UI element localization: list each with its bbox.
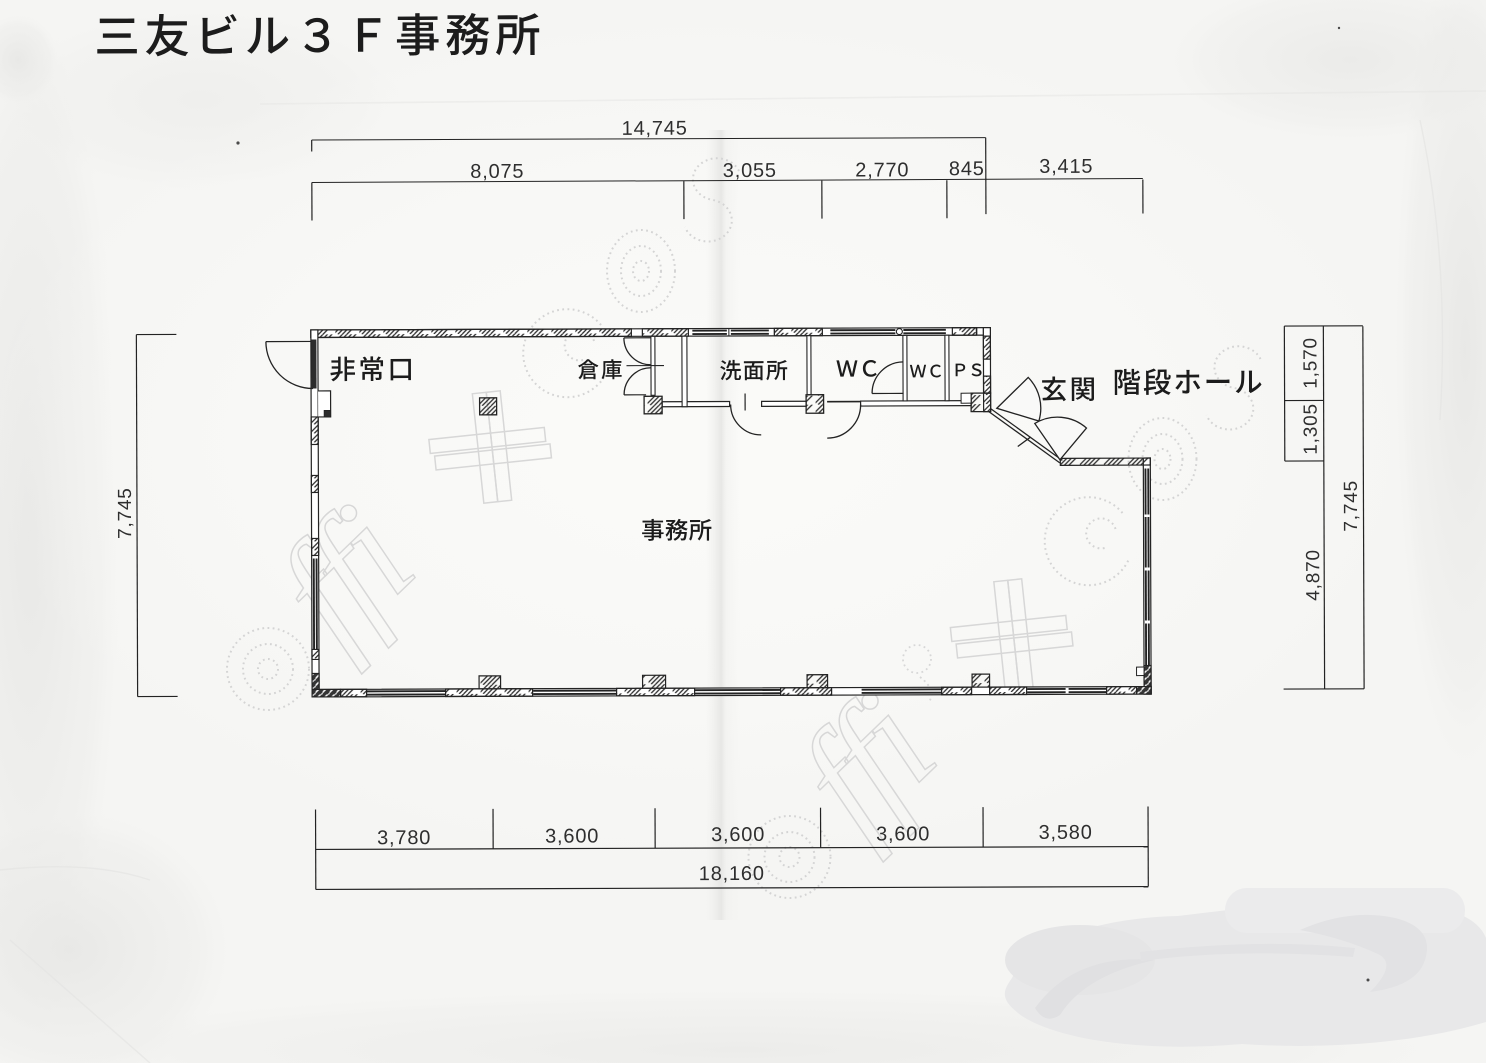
svg-text:8,075: 8,075: [470, 161, 524, 183]
svg-text:3,415: 3,415: [1039, 156, 1093, 178]
svg-text:3,580: 3,580: [1039, 822, 1093, 844]
svg-text:14,745: 14,745: [622, 118, 688, 140]
svg-text:845: 845: [949, 158, 985, 180]
svg-text:3,780: 3,780: [377, 827, 431, 849]
svg-text:7,745: 7,745: [115, 487, 136, 539]
svg-text:4,870: 4,870: [1303, 549, 1324, 601]
svg-text:3,055: 3,055: [723, 160, 777, 182]
svg-text:1,305: 1,305: [1301, 403, 1322, 455]
svg-text:7,745: 7,745: [1341, 480, 1362, 532]
svg-text:1,570: 1,570: [1300, 337, 1321, 389]
svg-text:3,600: 3,600: [545, 825, 599, 847]
svg-text:3,600: 3,600: [711, 824, 765, 846]
svg-text:3,600: 3,600: [876, 823, 930, 845]
svg-text:2,770: 2,770: [855, 159, 909, 181]
svg-text:18,160: 18,160: [699, 863, 765, 885]
